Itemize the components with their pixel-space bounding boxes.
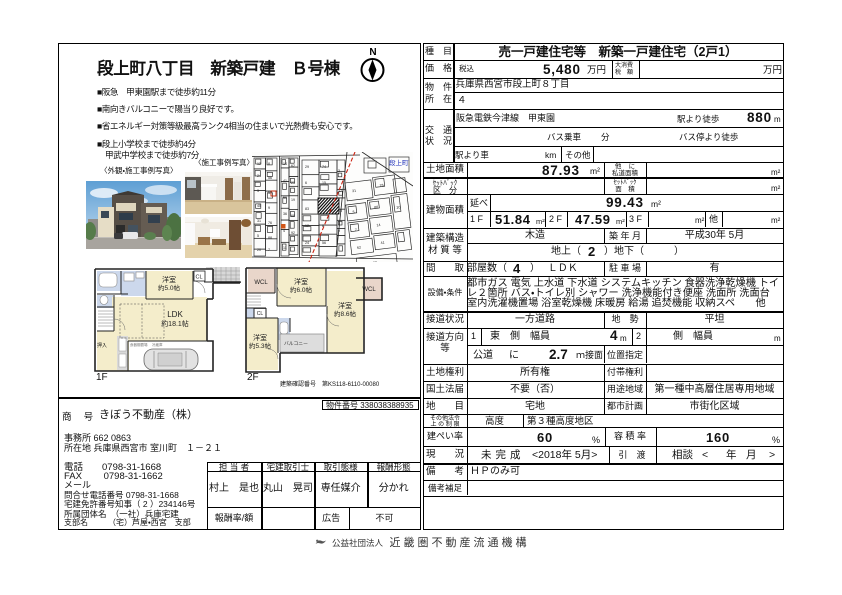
svg-text:4: 4 [283, 229, 285, 233]
svg-text:バルコニー: バルコニー [284, 341, 308, 347]
svg-text:68: 68 [291, 214, 295, 218]
svg-text:洋室: 洋室 [338, 301, 352, 310]
svg-text:3: 3 [338, 169, 340, 173]
svg-text:冷蔵庫: 冷蔵庫 [152, 342, 163, 347]
svg-text:15: 15 [322, 181, 326, 185]
svg-text:CL: CL [257, 311, 264, 317]
svg-text:約5.0帖: 約5.0帖 [158, 283, 181, 292]
svg-text:36: 36 [283, 212, 287, 216]
svg-text:3: 3 [257, 189, 259, 193]
svg-text:17: 17 [338, 189, 342, 193]
svg-text:WCL: WCL [362, 287, 376, 293]
svg-text:約5.3帖: 約5.3帖 [249, 341, 272, 350]
svg-text:11: 11 [283, 246, 287, 250]
svg-text:62: 62 [291, 164, 295, 168]
svg-text:約8.6帖: 約8.6帖 [334, 309, 357, 318]
svg-text:19: 19 [291, 198, 295, 202]
svg-text:8: 8 [322, 224, 324, 228]
svg-text:押入: 押入 [97, 342, 107, 349]
svg-text:45: 45 [338, 209, 342, 213]
svg-text:洋室: 洋室 [253, 333, 267, 342]
svg-text:41: 41 [283, 179, 287, 183]
svg-text:76: 76 [379, 183, 383, 187]
svg-text:14: 14 [376, 223, 380, 227]
svg-text:29: 29 [305, 165, 309, 169]
svg-text:17: 17 [268, 191, 272, 195]
svg-text:洋室: 洋室 [162, 275, 176, 284]
svg-text:6: 6 [305, 181, 307, 185]
svg-text:12: 12 [257, 162, 261, 166]
svg-text:段上町: 段上町 [389, 158, 409, 167]
svg-text:74: 74 [322, 165, 326, 169]
svg-text:24: 24 [257, 174, 261, 178]
svg-text:LDK: LDK [167, 310, 183, 319]
svg-text:56: 56 [268, 176, 272, 180]
svg-text:CL: CL [195, 275, 202, 281]
svg-text:9: 9 [268, 206, 270, 210]
svg-text:23: 23 [373, 261, 377, 262]
svg-text:20: 20 [257, 248, 261, 252]
svg-text:92: 92 [291, 231, 295, 235]
svg-text:23: 23 [291, 181, 295, 185]
svg-text:31: 31 [257, 219, 261, 223]
svg-text:5: 5 [257, 234, 259, 238]
svg-text:88: 88 [268, 236, 272, 240]
svg-text:約6.0帖: 約6.0帖 [290, 285, 313, 294]
svg-text:31: 31 [352, 189, 356, 193]
svg-text:WCL: WCL [254, 280, 268, 286]
svg-text:56: 56 [322, 241, 326, 245]
svg-text:76: 76 [268, 221, 272, 225]
svg-text:88: 88 [374, 205, 378, 209]
svg-text:8: 8 [268, 162, 270, 166]
svg-text:62: 62 [357, 246, 361, 250]
svg-text:24: 24 [305, 241, 309, 245]
svg-text:約18.1帖: 約18.1帖 [161, 319, 189, 328]
svg-text:N: N [369, 47, 376, 58]
svg-text:食器棚置場: 食器棚置場 [130, 342, 148, 347]
svg-text:83: 83 [305, 207, 309, 211]
svg-text:45: 45 [257, 204, 261, 208]
svg-text:7: 7 [268, 248, 270, 252]
svg-text:20: 20 [396, 205, 400, 209]
svg-text:洋室: 洋室 [294, 277, 308, 286]
svg-text:12: 12 [305, 224, 309, 228]
svg-text:50: 50 [283, 196, 287, 200]
svg-text:9: 9 [338, 229, 340, 233]
svg-text:41: 41 [380, 241, 384, 245]
svg-text:14: 14 [283, 162, 287, 166]
